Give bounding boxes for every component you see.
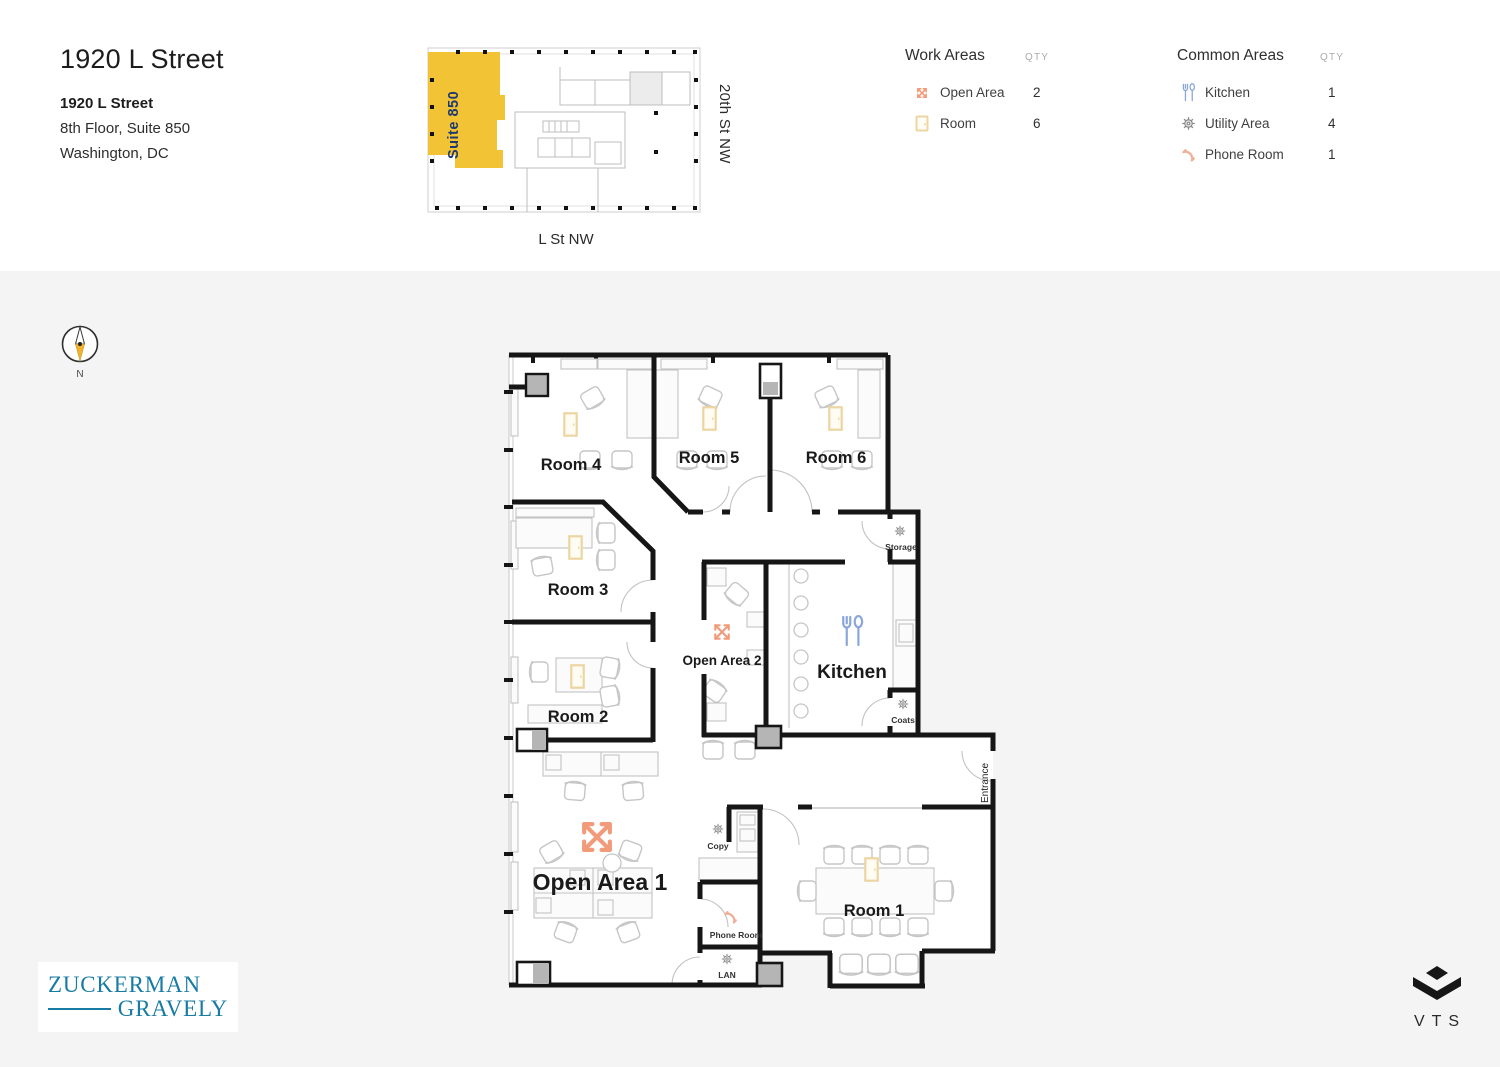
lan-gear-icon — [722, 954, 732, 964]
legend-item-kitchen: Kitchen 1 — [1177, 77, 1344, 108]
open-area-1-label: Open Area 1 — [533, 869, 668, 895]
storage-gear-icon — [895, 526, 905, 536]
legend-item-phone-room: Phone Room 1 — [1177, 139, 1344, 170]
street-label-20th: 20th St NW — [716, 84, 733, 204]
street-label-l-st: L St NW — [520, 231, 612, 248]
coats-label: Coats — [891, 715, 915, 725]
zuckerman-gravely-logo: ZUCKERMAN GRAVELY — [38, 962, 238, 1032]
compass-north-label: N — [76, 369, 83, 380]
room-5-door-icon — [703, 407, 715, 429]
building-name: 1920 L Street — [60, 91, 224, 116]
vts-mark-icon — [1412, 962, 1462, 1006]
work-areas-title: Work Areas — [905, 47, 1025, 65]
floor-plan: Room 4 Room 5 Room 6 Room 3 Room 2 Room … — [480, 330, 1025, 1010]
compass: N — [57, 317, 103, 381]
lan-label: LAN — [718, 970, 735, 980]
room-3-door-icon — [569, 536, 581, 558]
room-6-label: Room 6 — [806, 449, 867, 467]
legend-work-areas: Work Areas QTY Open Area 2 Room 6 — [905, 47, 1049, 139]
utensils-icon — [1180, 83, 1197, 102]
coats-gear-icon — [898, 699, 908, 709]
page: 1920 L Street 1920 L Street 8th Floor, S… — [0, 0, 1500, 1067]
work-areas-qty-header: QTY — [1025, 52, 1049, 63]
vts-wordmark: VTS — [1403, 1013, 1471, 1031]
common-areas-title: Common Areas — [1177, 47, 1320, 65]
legend-common-areas: Common Areas QTY Kitchen 1 Utility Area … — [1177, 47, 1344, 170]
phone-room-label: Phone Room — [710, 930, 763, 940]
vts-logo: VTS — [1403, 962, 1471, 1031]
logo-rule — [48, 1008, 111, 1010]
entrance-label: Entrance — [980, 763, 991, 803]
legend-item-open-area: Open Area 2 — [905, 77, 1049, 108]
open-area-arrows-icon — [914, 85, 930, 101]
copy-label: Copy — [707, 841, 729, 851]
storage-label: Storage — [885, 542, 917, 552]
city: Washington, DC — [60, 141, 224, 166]
room-1-label: Room 1 — [844, 902, 905, 920]
broker-name-line2: GRAVELY — [118, 996, 228, 1022]
floor-suite: 8th Floor, Suite 850 — [60, 116, 224, 141]
room-4-label: Room 4 — [541, 456, 602, 474]
suite-850-label: Suite 850 — [446, 91, 462, 159]
room-3-label: Room 3 — [548, 581, 609, 599]
title-block: 1920 L Street 1920 L Street 8th Floor, S… — [60, 44, 224, 166]
suite-850-highlight — [428, 52, 505, 168]
room-5-label: Room 5 — [679, 449, 740, 467]
kitchen-label: Kitchen — [817, 662, 887, 683]
phone-icon — [1181, 147, 1197, 163]
common-areas-qty-header: QTY — [1320, 52, 1344, 63]
legend-item-utility-area: Utility Area 4 — [1177, 108, 1344, 139]
key-plan: Suite 850 — [425, 45, 705, 225]
gear-icon — [1180, 115, 1197, 132]
room-4-door-icon — [564, 413, 576, 435]
room-6-door-icon — [829, 407, 841, 429]
broker-name-line1: ZUCKERMAN — [38, 962, 238, 998]
room-2-door-icon — [571, 665, 583, 687]
door-icon — [915, 115, 929, 132]
page-title: 1920 L Street — [60, 44, 224, 75]
copy-gear-icon — [713, 824, 723, 834]
room-1-door-icon — [865, 858, 877, 880]
legend-item-room: Room 6 — [905, 108, 1049, 139]
open-area-2-label: Open Area 2 — [682, 653, 761, 668]
room-2-label: Room 2 — [548, 708, 609, 726]
